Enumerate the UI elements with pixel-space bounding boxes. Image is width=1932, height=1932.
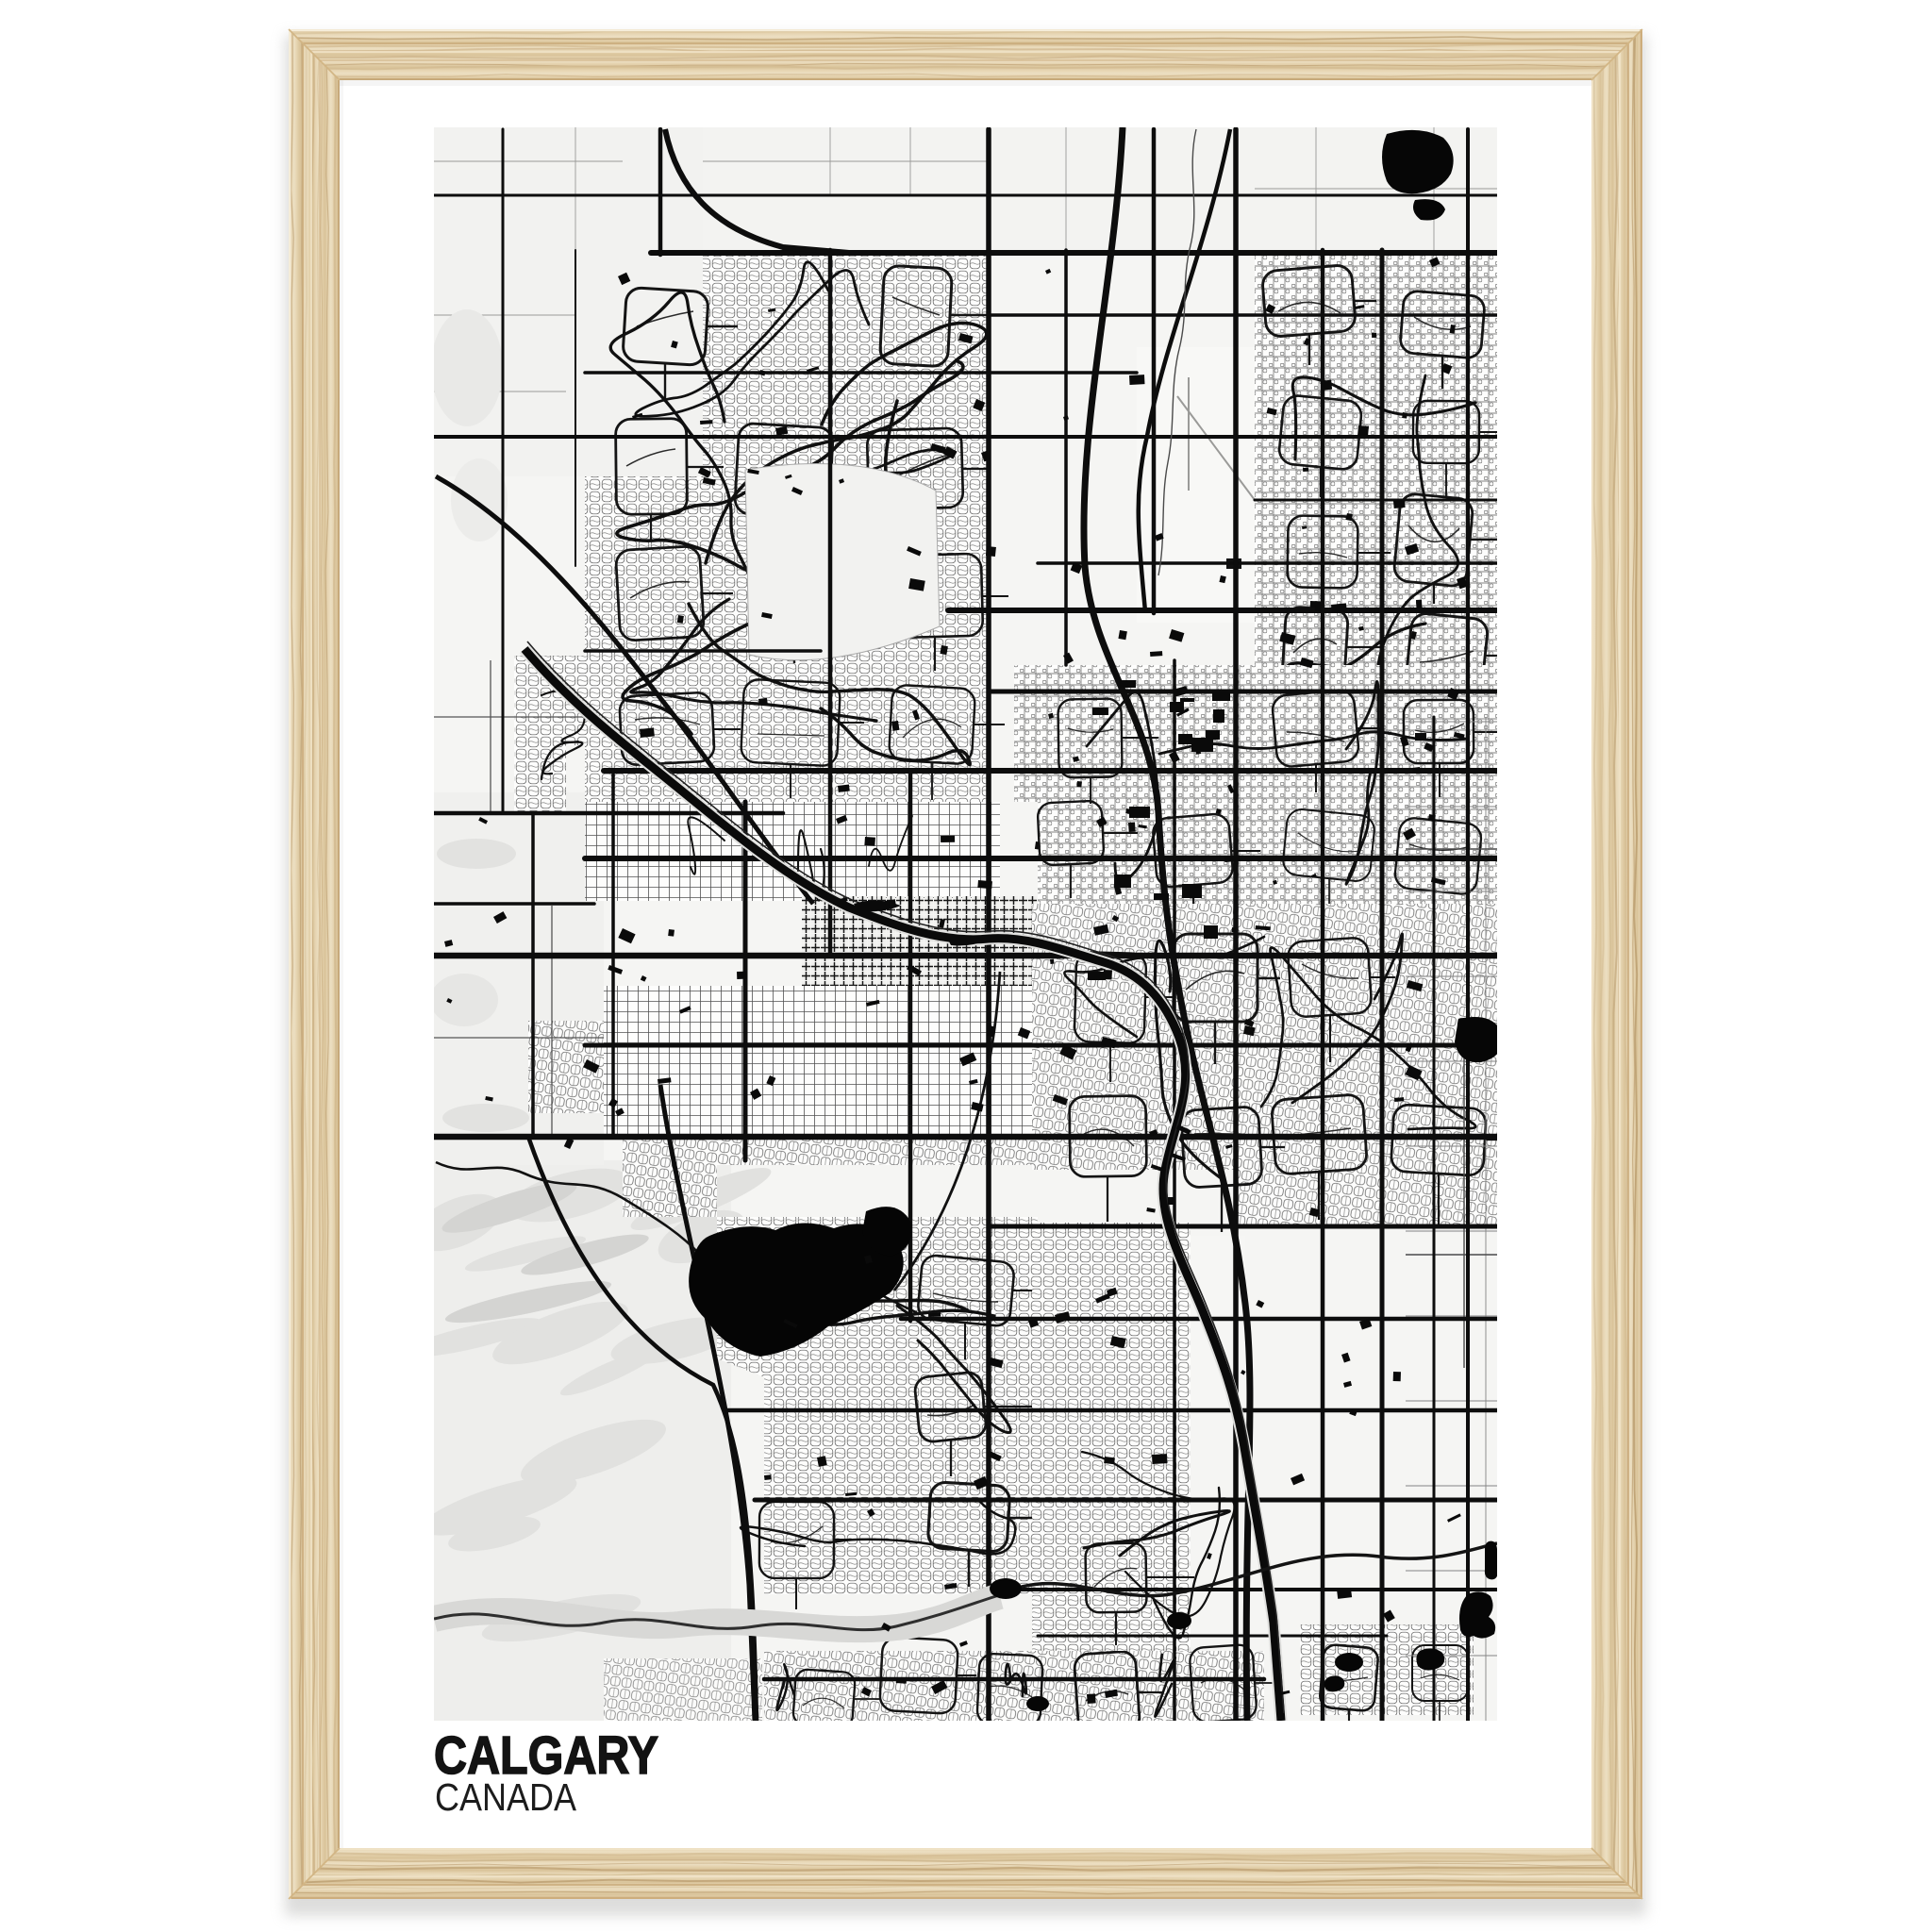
svg-text:CANADA: CANADA (435, 1775, 577, 1819)
